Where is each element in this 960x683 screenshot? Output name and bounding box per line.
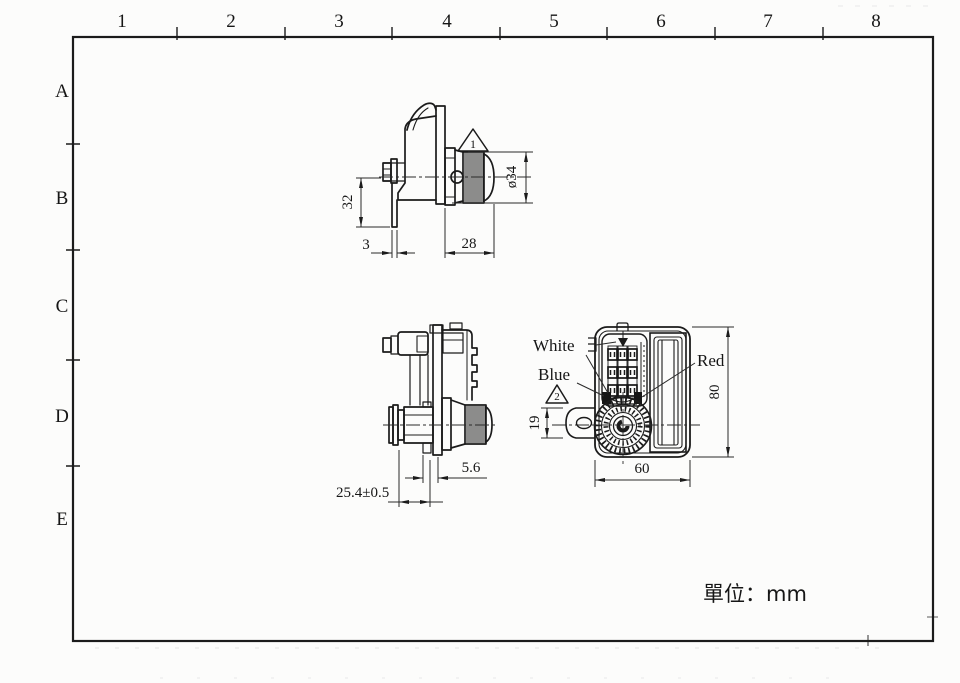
border-rect [73,37,933,641]
technical-drawing: 1 2 3 4 5 6 7 8 A B C D E [0,0,960,683]
blue-leader-line [577,383,604,396]
dim-19: 19 [527,416,543,431]
grid-row-label: D [55,406,69,427]
upper-knob-knurl-hatch [465,153,483,202]
dim-5-6: 5.6 [462,460,481,476]
digit-wheels [608,349,637,396]
dim-60: 60 [635,461,650,477]
dim-3: 3 [362,237,370,253]
grid-column-label: 4 [442,11,452,32]
warning-note-2: 2 [554,391,560,403]
grid-column-label: 2 [226,11,236,32]
grid-row-label: C [56,296,69,317]
label-red: Red [697,351,725,370]
grid-column-label: 8 [871,11,881,32]
latch-panel [650,333,686,452]
dim-diameter-34: ø34 [504,165,520,188]
label-blue: Blue [538,365,570,384]
combination-panel [602,331,647,406]
mounting-ear [566,408,595,438]
dim-28: 28 [462,236,477,252]
grid-column-label: 1 [117,11,127,32]
dim-25-4: 25.4±0.5 [336,485,389,501]
grid-row-label: A [55,81,69,102]
drawing-sheet: 1 2 3 4 5 6 7 8 A B C D E [0,0,960,683]
sheet-frame [66,27,938,646]
lower-view-outline [383,323,492,455]
unit-note: 單位：mm [703,582,807,606]
grid-row-label: E [56,509,68,530]
view-front: 2 White Blue Red 19 80 60 [527,323,734,487]
lower-knob-knurl-hatch [467,406,485,443]
grid-row-labels: A B C D E [55,81,69,530]
scan-noise [95,6,936,678]
grid-column-label: 7 [763,11,773,32]
grid-column-label: 5 [549,11,559,32]
view-side-upper: 1 32 3 28 ø34 [340,103,533,258]
lower-dimension-lines [388,450,487,507]
grid-column-label: 3 [334,11,344,32]
grid-column-label: 6 [656,11,666,32]
warning-note-1: 1 [470,137,476,151]
dim-32: 32 [340,195,356,210]
dim-80: 80 [707,385,723,400]
grid-row-label: B [56,188,69,209]
view-side-lower: 5.6 25.4±0.5 [336,323,497,507]
label-white: White [533,336,575,355]
warning-triangle-2: 2 [546,385,568,403]
grid-column-labels: 1 2 3 4 5 6 7 8 [117,11,881,32]
warning-triangle-1: 1 [458,129,488,151]
